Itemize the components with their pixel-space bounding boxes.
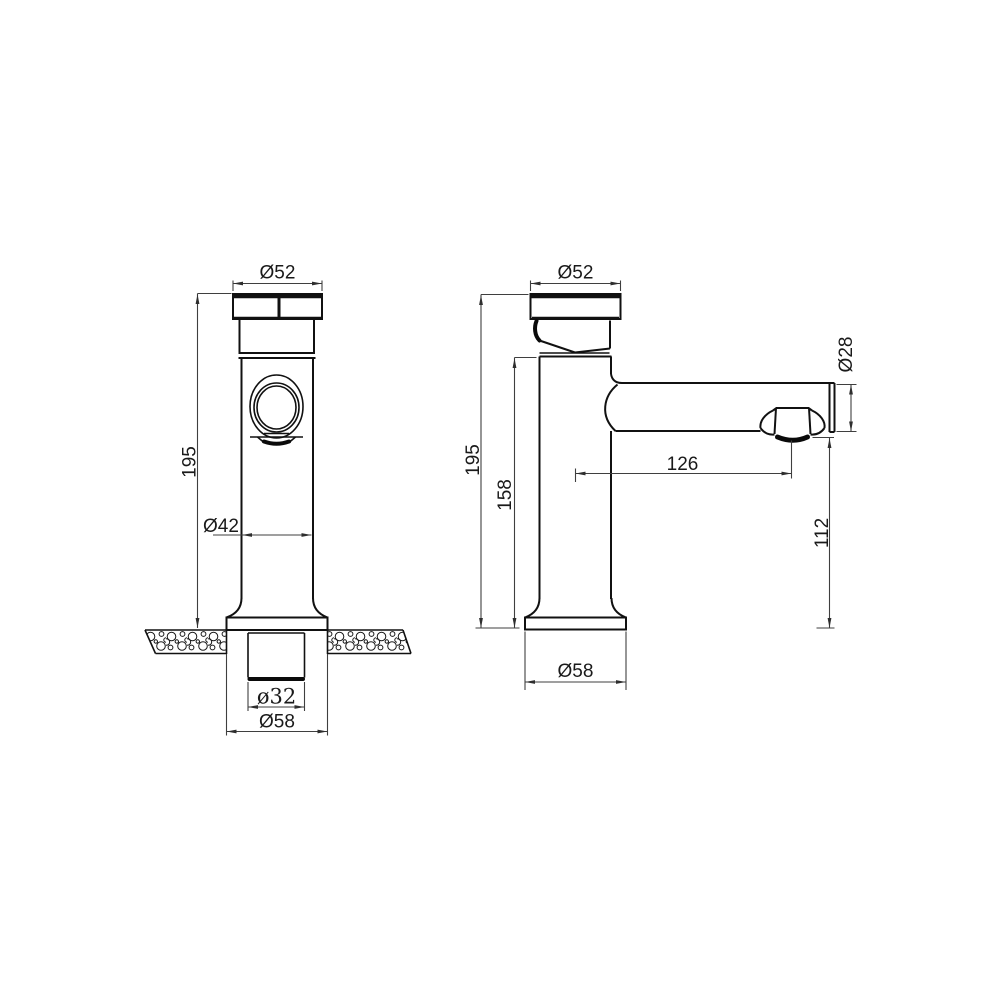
- faucet-technical-drawing: Ø52 195 Ø42 ø32 Ø58: [0, 0, 1000, 1000]
- side-view: Ø52 195 158 126: [463, 263, 857, 691]
- side-cap: [531, 294, 621, 319]
- side-dim-outlet-height: 112: [812, 518, 833, 548]
- front-cap: [233, 294, 322, 319]
- side-dim-cap-diameter: Ø52: [558, 263, 594, 284]
- side-dimensions: Ø52 195 158 126: [463, 263, 857, 691]
- side-dim-spout-diameter: Ø28: [836, 337, 857, 373]
- front-dim-overall-height: 195: [180, 446, 201, 478]
- side-base: [525, 598, 626, 630]
- side-dim-body-height: 158: [495, 479, 516, 511]
- front-dim-shank-diameter: ø32: [257, 685, 296, 709]
- front-shank: [248, 633, 305, 679]
- drawing-canvas: Ø52 195 Ø42 ø32 Ø58: [0, 0, 1000, 1000]
- front-dim-cap-diameter: Ø52: [260, 263, 296, 284]
- front-dim-body-diameter: Ø42: [203, 516, 239, 537]
- front-dim-base-diameter: Ø58: [259, 712, 295, 733]
- side-aerator-nut: [760, 408, 824, 440]
- side-plunger: [535, 321, 610, 354]
- side-dim-base-diameter: Ø58: [558, 661, 594, 682]
- front-base: [227, 598, 328, 630]
- front-neck: [239, 319, 316, 358]
- front-view: Ø52 195 Ø42 ø32 Ø58: [145, 263, 411, 736]
- side-dim-spout-reach: 126: [667, 454, 699, 475]
- front-push-knob: [250, 375, 303, 444]
- side-spout: [605, 374, 834, 432]
- side-dim-overall-height: 195: [463, 444, 484, 476]
